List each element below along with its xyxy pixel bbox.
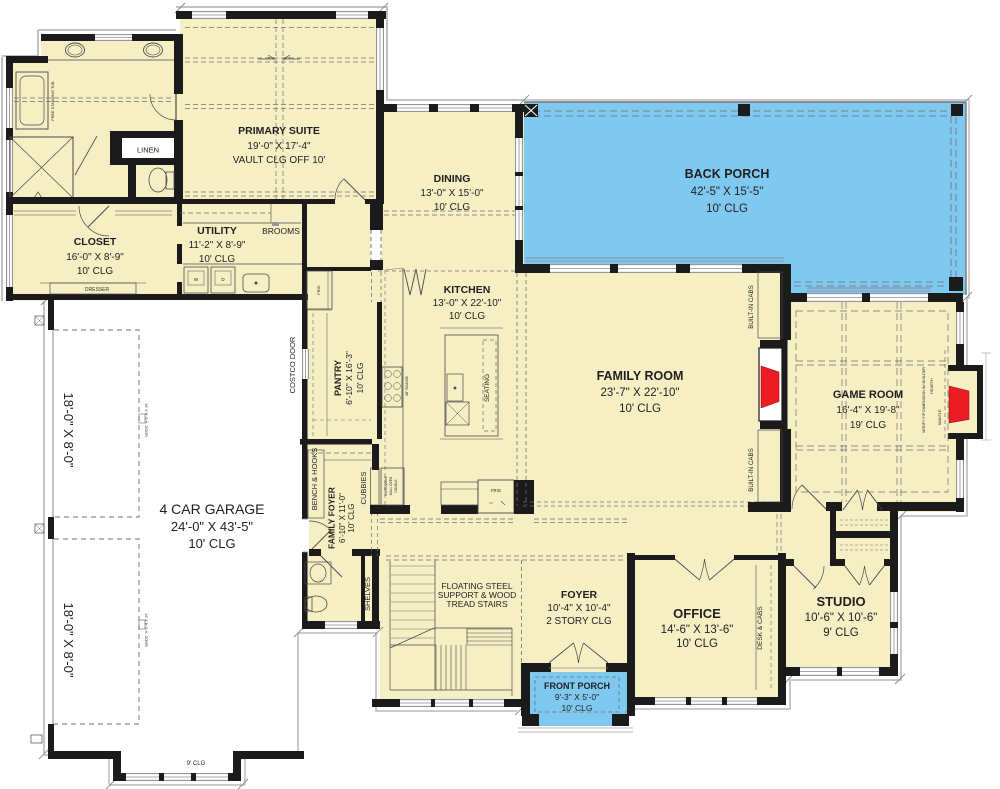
svg-text:COSTCO DOOR: COSTCO DOOR bbox=[288, 336, 297, 393]
svg-text:PANTRY: PANTRY bbox=[333, 360, 343, 396]
svg-text:CUBBIES: CUBBIES bbox=[359, 472, 368, 505]
svg-text:MANTLE: MANTLE bbox=[938, 409, 942, 425]
svg-text:DINING: DINING bbox=[434, 173, 471, 185]
svg-text:10' CLG: 10' CLG bbox=[676, 638, 718, 650]
svg-text:UTILITY: UTILITY bbox=[197, 225, 237, 237]
svg-text:10'-4" X 10'-4": 10'-4" X 10'-4" bbox=[547, 603, 611, 614]
svg-text:FRONT PORCH: FRONT PORCH bbox=[544, 681, 610, 691]
svg-text:VERIFY F/P DIMENSION W/ BUILDE: VERIFY F/P DIMENSION W/ BUILDER bbox=[922, 367, 926, 434]
svg-text:MICROWAVE: MICROWAVE bbox=[384, 476, 388, 496]
svg-text:16' X 8' O.H. DOOR: 16' X 8' O.H. DOOR bbox=[144, 613, 148, 647]
svg-text:10' CLG: 10' CLG bbox=[706, 203, 748, 215]
svg-text:18'-0" X 8'-0": 18'-0" X 8'-0" bbox=[61, 393, 76, 468]
svg-text:16'-4" X 19'-8": 16'-4" X 19'-8" bbox=[836, 405, 900, 416]
svg-text:16'-0" X 8'-9": 16'-0" X 8'-9" bbox=[66, 252, 124, 263]
svg-text:9'-3" X 5'-0": 9'-3" X 5'-0" bbox=[555, 692, 599, 702]
svg-text:WALL OVEN: WALL OVEN bbox=[389, 476, 393, 495]
svg-text:9' CLG: 9' CLG bbox=[823, 627, 858, 639]
svg-text:10' CLG: 10' CLG bbox=[619, 403, 661, 415]
svg-text:19'-0" X 17'-4": 19'-0" X 17'-4" bbox=[247, 141, 311, 152]
svg-text:6'-10" X 16'-3": 6'-10" X 16'-3" bbox=[344, 351, 354, 405]
svg-text:10' CLG: 10' CLG bbox=[355, 363, 365, 394]
svg-text:10' CLG: 10' CLG bbox=[562, 703, 593, 713]
svg-text:SHELVES: SHELVES bbox=[363, 577, 372, 611]
svg-text:DRESSER: DRESSER bbox=[85, 287, 110, 293]
svg-text:10' CLG: 10' CLG bbox=[347, 503, 356, 532]
svg-text:SEATING: SEATING bbox=[484, 374, 491, 402]
svg-text:FREE STANDING TUB: FREE STANDING TUB bbox=[51, 81, 55, 121]
svg-text:BROOMS: BROOMS bbox=[262, 226, 300, 236]
svg-text:10'-6" X 10'-6": 10'-6" X 10'-6" bbox=[805, 612, 878, 624]
svg-text:OFFICE: OFFICE bbox=[673, 606, 721, 621]
svg-text:LINEN: LINEN bbox=[137, 146, 159, 155]
svg-text:BUILT-IN CABS: BUILT-IN CABS bbox=[748, 448, 755, 492]
svg-text:DOUBLE: DOUBLE bbox=[394, 479, 398, 492]
svg-text:19' CLG: 19' CLG bbox=[850, 420, 887, 431]
svg-text:24'-0" X 43'-5": 24'-0" X 43'-5" bbox=[171, 519, 254, 534]
svg-text:16' X 8' O.H. DOOR: 16' X 8' O.H. DOOR bbox=[144, 403, 148, 437]
svg-text:2 STORY CLG: 2 STORY CLG bbox=[546, 616, 612, 627]
svg-text:FRIG: FRIG bbox=[316, 285, 321, 295]
svg-text:10' CLG: 10' CLG bbox=[449, 311, 486, 322]
svg-text:HEARTH: HEARTH bbox=[930, 378, 934, 394]
svg-text:KITCHEN: KITCHEN bbox=[444, 284, 491, 296]
svg-text:BENCH & HOOKS: BENCH & HOOKS bbox=[310, 448, 319, 511]
svg-text:9' CLG: 9' CLG bbox=[187, 761, 206, 767]
svg-text:FRIG: FRIG bbox=[491, 488, 501, 493]
svg-text:13'-0" X 15'-0": 13'-0" X 15'-0" bbox=[420, 188, 484, 199]
svg-text:BACK PORCH: BACK PORCH bbox=[685, 167, 770, 181]
svg-text:CLOSET: CLOSET bbox=[74, 236, 117, 248]
svg-text:PRIMARY SUITE: PRIMARY SUITE bbox=[238, 125, 320, 137]
svg-text:6'-10" X 11'-0": 6'-10" X 11'-0" bbox=[338, 493, 347, 543]
svg-text:BUILT-IN CABS: BUILT-IN CABS bbox=[748, 285, 755, 329]
svg-text:FOYER: FOYER bbox=[561, 589, 598, 601]
svg-text:11'-2" X 8'-9": 11'-2" X 8'-9" bbox=[189, 240, 246, 251]
svg-text:10' CLG: 10' CLG bbox=[199, 254, 236, 265]
svg-text:VAULT CLG OFF 10': VAULT CLG OFF 10' bbox=[233, 155, 326, 166]
svg-text:48" RANGE: 48" RANGE bbox=[405, 375, 409, 396]
svg-text:FAMILY FOYER: FAMILY FOYER bbox=[327, 487, 337, 549]
svg-text:13'-0" X 22'-10": 13'-0" X 22'-10" bbox=[433, 298, 502, 309]
svg-text:STUDIO: STUDIO bbox=[816, 594, 865, 609]
svg-text:18'-0" X 8'-0": 18'-0" X 8'-0" bbox=[61, 603, 76, 678]
svg-text:GAME ROOM: GAME ROOM bbox=[833, 389, 903, 401]
svg-text:DESK & CABS: DESK & CABS bbox=[757, 606, 764, 650]
svg-text:4 CAR GARAGE: 4 CAR GARAGE bbox=[159, 501, 264, 517]
svg-text:10' CLG: 10' CLG bbox=[188, 536, 235, 551]
svg-text:10' CLG: 10' CLG bbox=[434, 202, 471, 213]
svg-text:42'-5" X 15'-5": 42'-5" X 15'-5" bbox=[691, 186, 764, 198]
svg-text:10' CLG: 10' CLG bbox=[77, 266, 114, 277]
svg-text:FAMILY ROOM: FAMILY ROOM bbox=[597, 369, 684, 383]
svg-text:23'-7" X 22'-10": 23'-7" X 22'-10" bbox=[600, 387, 679, 399]
svg-text:14'-6" X 13'-6": 14'-6" X 13'-6" bbox=[661, 624, 734, 636]
svg-text:TREAD STAIRS: TREAD STAIRS bbox=[446, 599, 508, 609]
